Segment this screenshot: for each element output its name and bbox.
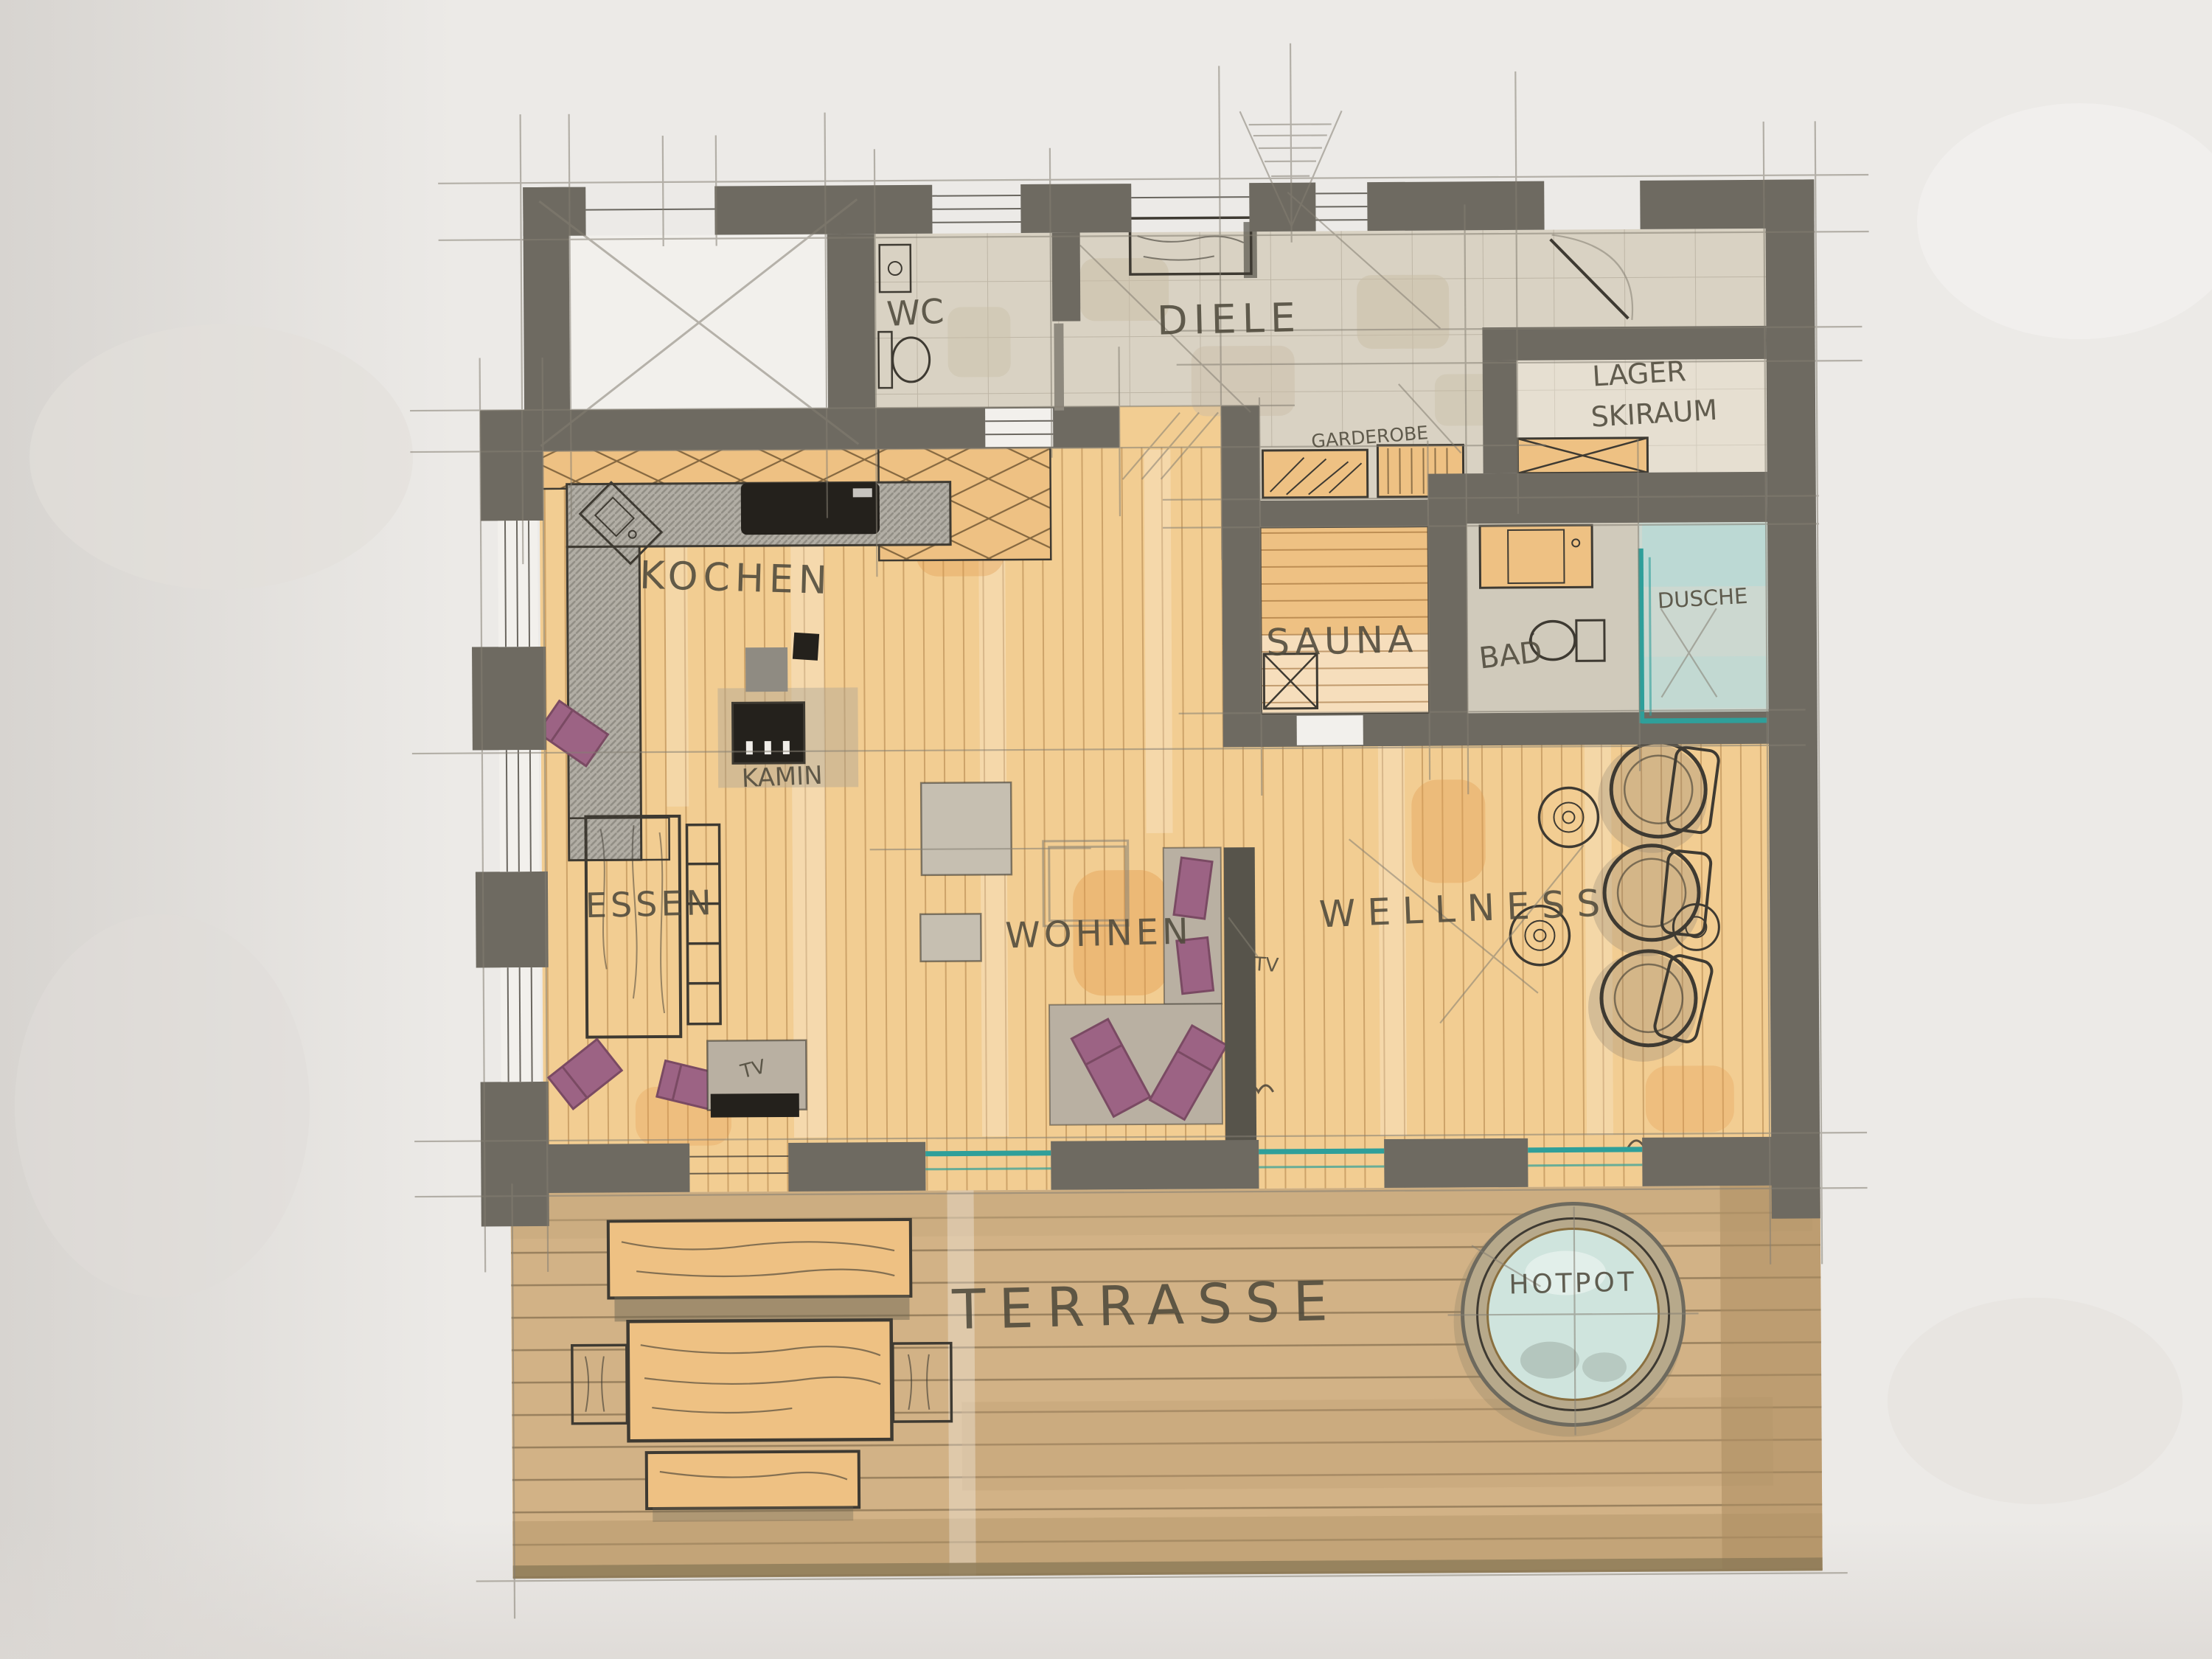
garderobe-bench-1 [1262,450,1367,498]
terrace-table [628,1320,892,1441]
label-kochen: KOCHEN [639,554,833,604]
shower-glass [1641,549,1641,723]
label-lager: LAGER [1591,355,1687,392]
label-tv-wall: TV [1252,953,1279,977]
shelf-block-b [920,914,981,961]
label-wc: WC [886,291,945,334]
label-terrasse: TERRASSE [951,1270,1342,1342]
floorplan-svg: WC DIELE GARDEROBE LAGER SKIRAUM SAUNA B… [0,0,2212,1659]
shelf-block-a [921,782,1012,875]
east-wall [1765,179,1820,1218]
label-dusche: DUSCHE [1657,583,1748,613]
terrace-bench-top [608,1220,911,1322]
terrace-bench-bottom [647,1451,860,1522]
fireplace-kamin [732,703,804,764]
washbasin [1480,525,1593,588]
label-kamin: KAMIN [741,761,823,793]
label-bad: BAD [1478,635,1544,675]
sauna-wall-left [1221,406,1262,746]
label-sauna: SAUNA [1265,618,1417,664]
tv-wall [1224,847,1257,1153]
label-hotpot: HOTPOT [1509,1267,1637,1300]
sauna-wall-right [1428,473,1468,745]
label-diele: DIELE [1156,294,1301,344]
log-box [793,633,819,661]
fireplace-side-cabinet [745,647,787,692]
label-essen: ESSEN [585,883,715,925]
label-wohnen: WOHNEN [1005,911,1193,956]
lager-bench [1517,438,1647,473]
wc-door [1054,324,1064,411]
sketch-photo: WC DIELE GARDEROBE LAGER SKIRAUM SAUNA B… [0,0,2212,1659]
